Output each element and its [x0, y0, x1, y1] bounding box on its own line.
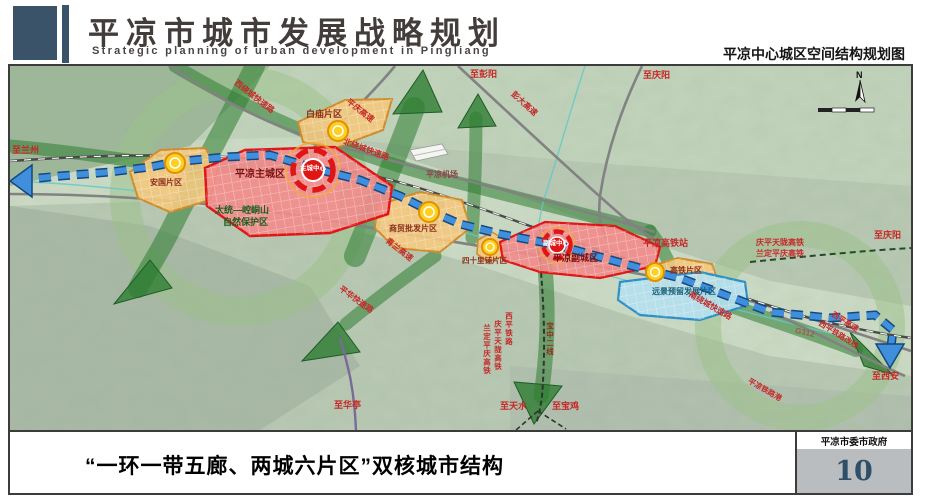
map-label-v-xiping-railway: 西平铁路	[505, 312, 513, 346]
map-label-qingping-hsr: 庆平天陇高铁	[756, 239, 804, 247]
compass-icon	[843, 72, 883, 106]
planning-slide: 平凉市城市发展战略规划 Strategic planning of urban …	[0, 0, 925, 500]
map-label-sishilipu: 四十里铺片区	[462, 257, 507, 265]
map-label-v-baozhong: 宝中二线	[546, 322, 554, 356]
planning-map: N 至兰州 太统—崆峒山 自然保护区 西绕城快速路 白庙片区 平庆高速 北绕城快…	[10, 66, 911, 432]
map-label-main-city: 平凉主城区	[235, 170, 285, 180]
map-label-hsr-district: 高铁片区	[670, 267, 702, 275]
scale-bar	[818, 108, 874, 112]
map-label-east-center: 副城中心	[543, 241, 569, 248]
map-label-hsr-station: 平凉高铁站	[643, 239, 688, 248]
map-label-nature-reserve-2: 自然保护区	[223, 218, 268, 227]
map-label-trade-district: 商贸批发片区	[389, 225, 437, 233]
north-arrow: N	[843, 72, 883, 106]
header-accent-square	[13, 6, 57, 60]
page-subtitle: Strategic planning of urban development …	[92, 45, 491, 57]
footer-band: “一环一带五廊、两城六片区”双核城市结构 平凉市委市政府 10	[10, 432, 911, 493]
map-label-v-qingping-hsr: 庆平天陇高铁	[494, 320, 502, 371]
map-label-v-landing-hsr: 兰定平庆高铁	[483, 324, 491, 375]
organization-label: 平凉市委市政府	[797, 434, 911, 448]
map-label-airport: 平凉机场	[426, 171, 458, 179]
map-label-to-qingyang-north: 至庆阳	[643, 71, 670, 80]
map-label-to-pengyang: 至彭阳	[470, 70, 497, 79]
map-canvas	[10, 66, 911, 430]
map-label-to-huating: 至华亭	[334, 401, 361, 410]
stamp-box: 平凉市委市政府 10	[795, 432, 911, 493]
map-caption: “一环一带五廊、两城六片区”双核城市结构	[85, 450, 504, 480]
header-accent-bar	[62, 5, 69, 63]
map-label-anguo: 安国片区	[150, 179, 182, 187]
map-label-to-qingyang-east: 至庆阳	[874, 231, 901, 240]
map-figure-title: 平凉中心城区空间结构规划图	[723, 44, 905, 64]
map-label-to-baoji: 至宝鸡	[552, 402, 579, 411]
map-label-reserved-district: 远景预留发展片区	[652, 288, 716, 296]
map-label-east-city: 平凉副城区	[553, 254, 598, 263]
terrain-texture	[10, 66, 911, 430]
map-label-nature-reserve-1: 太统—崆峒山	[215, 206, 269, 215]
map-label-to-tianshui: 至天水	[500, 402, 527, 411]
map-label-landing-hsr: 兰定平庆高铁	[756, 250, 804, 258]
map-label-to-lanzhou: 至兰州	[12, 146, 39, 155]
content-frame: N 至兰州 太统—崆峒山 自然保护区 西绕城快速路 白庙片区 平庆高速 北绕城快…	[8, 64, 913, 495]
map-label-baimiao: 白庙片区	[306, 110, 342, 119]
page-number: 10	[797, 449, 911, 493]
map-label-main-center: 主城中心	[300, 166, 326, 173]
map-label-to-xian: 至西安	[872, 372, 899, 381]
